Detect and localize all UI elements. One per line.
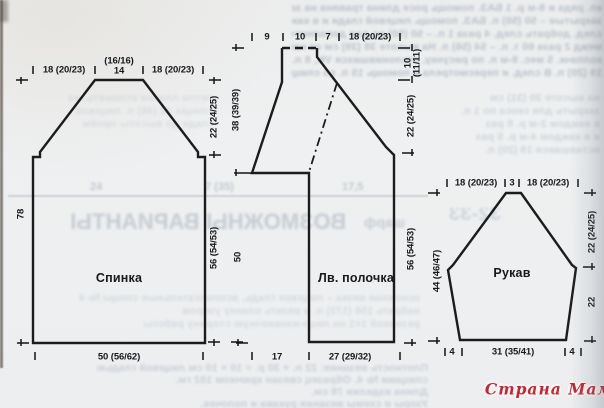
front-seg2-measure: 10	[295, 32, 305, 43]
sleeve-cap-top-measure: 3	[509, 178, 514, 189]
front-seg4-measure: 18 (20/23)	[349, 32, 391, 43]
dimension-ticks	[16, 33, 596, 360]
front-piece-title: Лв. полочка	[318, 271, 394, 285]
back-piece-title: Спинка	[96, 271, 142, 285]
front-hem-left-measure: 17	[272, 352, 282, 363]
back-side-height-measure: 56 (54/53)	[209, 227, 220, 269]
back-shoulder-left-measure: 18 (20/23)	[43, 65, 85, 76]
front-seg3-measure: 7	[325, 32, 330, 43]
back-shoulder-right-measure: 18 (20/23)	[152, 65, 194, 76]
sleeve-hem-left-measure: 4	[449, 347, 454, 358]
scan-edge-right	[570, 0, 604, 408]
front-side-height-measure: 56 (54/53)	[406, 228, 417, 270]
sleeve-piece-title: Рукав	[493, 266, 530, 280]
scanned-pattern-page: кп. ряда в 8-м р. 1 БАЗ. помощь росе дли…	[0, 0, 604, 408]
back-total-height-measure: 78	[16, 209, 27, 219]
front-hem-measure: 27 (29/32)	[329, 352, 371, 363]
back-neck-measure: 14	[114, 66, 124, 77]
front-neck-height-measure: 10 (11/11)	[405, 49, 422, 77]
front-armhole-measure: 22 (24/25)	[406, 95, 417, 137]
front-left-upper-measure: 38 (39/39)	[231, 89, 242, 131]
front-left-lower-measure: 50	[233, 252, 244, 262]
sleeve-cap-right-measure: 18 (20/23)	[527, 178, 569, 189]
scan-edge-left	[0, 0, 3, 368]
sleeve-length-measure: 44 (46/47)	[432, 250, 443, 292]
back-piece-outline	[33, 80, 205, 343]
back-hem-measure: 50 (56/62)	[98, 352, 140, 363]
front-piece-outline	[252, 48, 394, 342]
front-neck-height-alt: (11/11)	[411, 49, 422, 77]
sleeve-cap-left-measure: 18 (20/23)	[455, 178, 497, 189]
sleeve-hem-measure: 31 (35/41)	[492, 347, 534, 358]
front-seg1-measure: 9	[264, 32, 269, 43]
back-armhole-depth-measure: 22 (24/25)	[209, 96, 220, 138]
front-fold-line	[309, 83, 337, 172]
